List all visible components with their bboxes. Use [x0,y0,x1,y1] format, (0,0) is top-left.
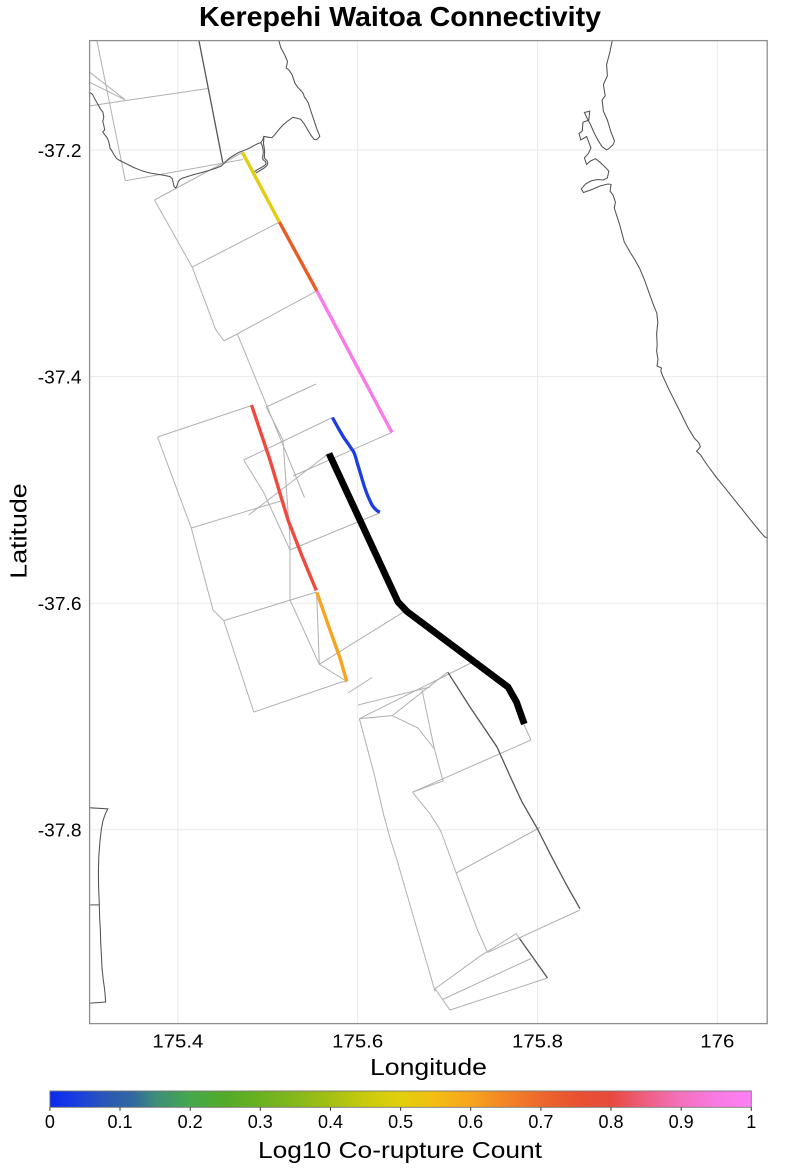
svg-text:0.9: 0.9 [669,1112,694,1132]
svg-text:0: 0 [45,1112,55,1132]
svg-text:0.7: 0.7 [528,1112,553,1132]
svg-text:0.5: 0.5 [388,1112,413,1132]
svg-text:1: 1 [746,1112,756,1132]
svg-text:-37.4: -37.4 [38,368,82,388]
svg-text:0.1: 0.1 [107,1112,132,1132]
svg-text:175.8: 175.8 [512,1032,563,1052]
svg-text:0.6: 0.6 [458,1112,483,1132]
svg-text:Latitude: Latitude [6,483,32,578]
svg-text:Longitude: Longitude [370,1054,487,1080]
svg-text:0.8: 0.8 [598,1112,623,1132]
svg-text:-37.8: -37.8 [38,821,82,841]
svg-text:0.3: 0.3 [248,1112,273,1132]
svg-text:-37.2: -37.2 [38,141,82,161]
svg-text:175.6: 175.6 [332,1032,383,1052]
svg-text:Kerepehi Waitoa Connectivity: Kerepehi Waitoa Connectivity [199,1,601,32]
svg-text:176: 176 [700,1032,734,1052]
svg-text:-37.6: -37.6 [38,594,82,614]
svg-text:Log10 Co-rupture Count: Log10 Co-rupture Count [258,1137,543,1163]
svg-text:175.4: 175.4 [152,1032,203,1052]
svg-text:0.2: 0.2 [178,1112,203,1132]
svg-text:0.4: 0.4 [318,1112,343,1132]
